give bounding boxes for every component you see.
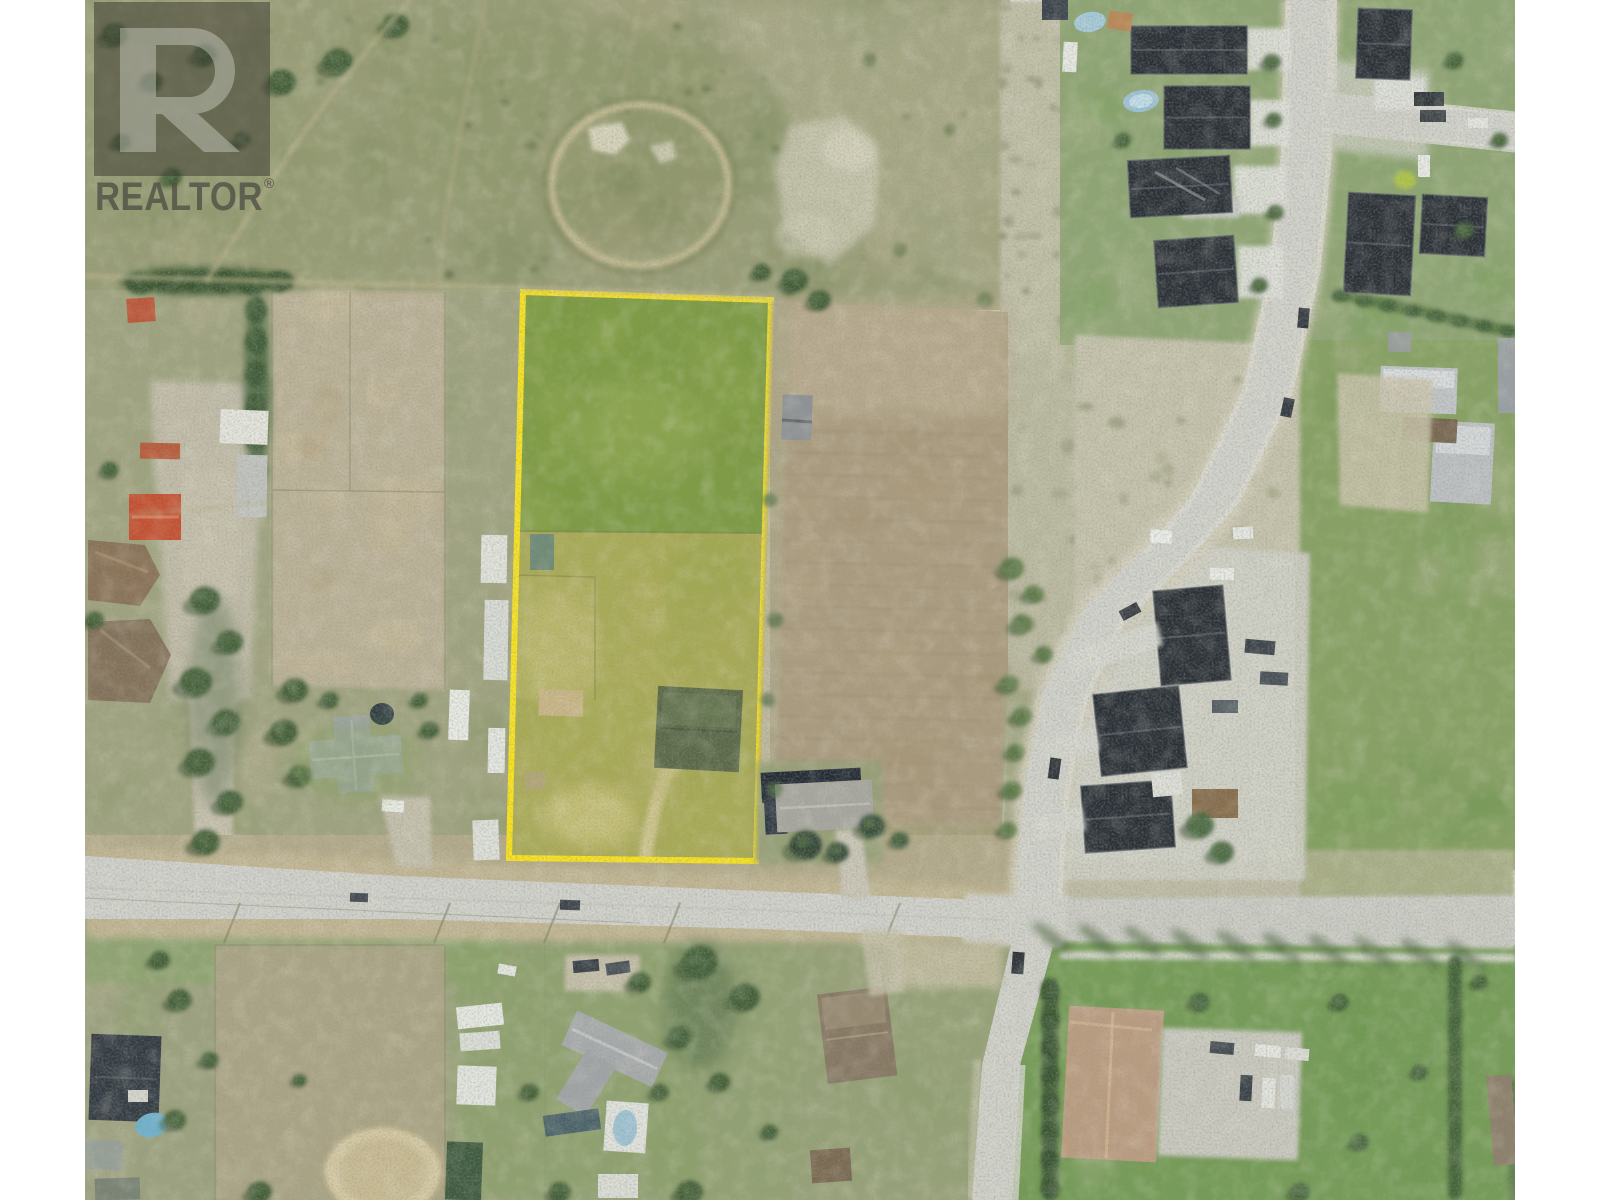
svg-text:®: ® (264, 175, 275, 191)
svg-text:REALTOR: REALTOR (95, 175, 263, 219)
